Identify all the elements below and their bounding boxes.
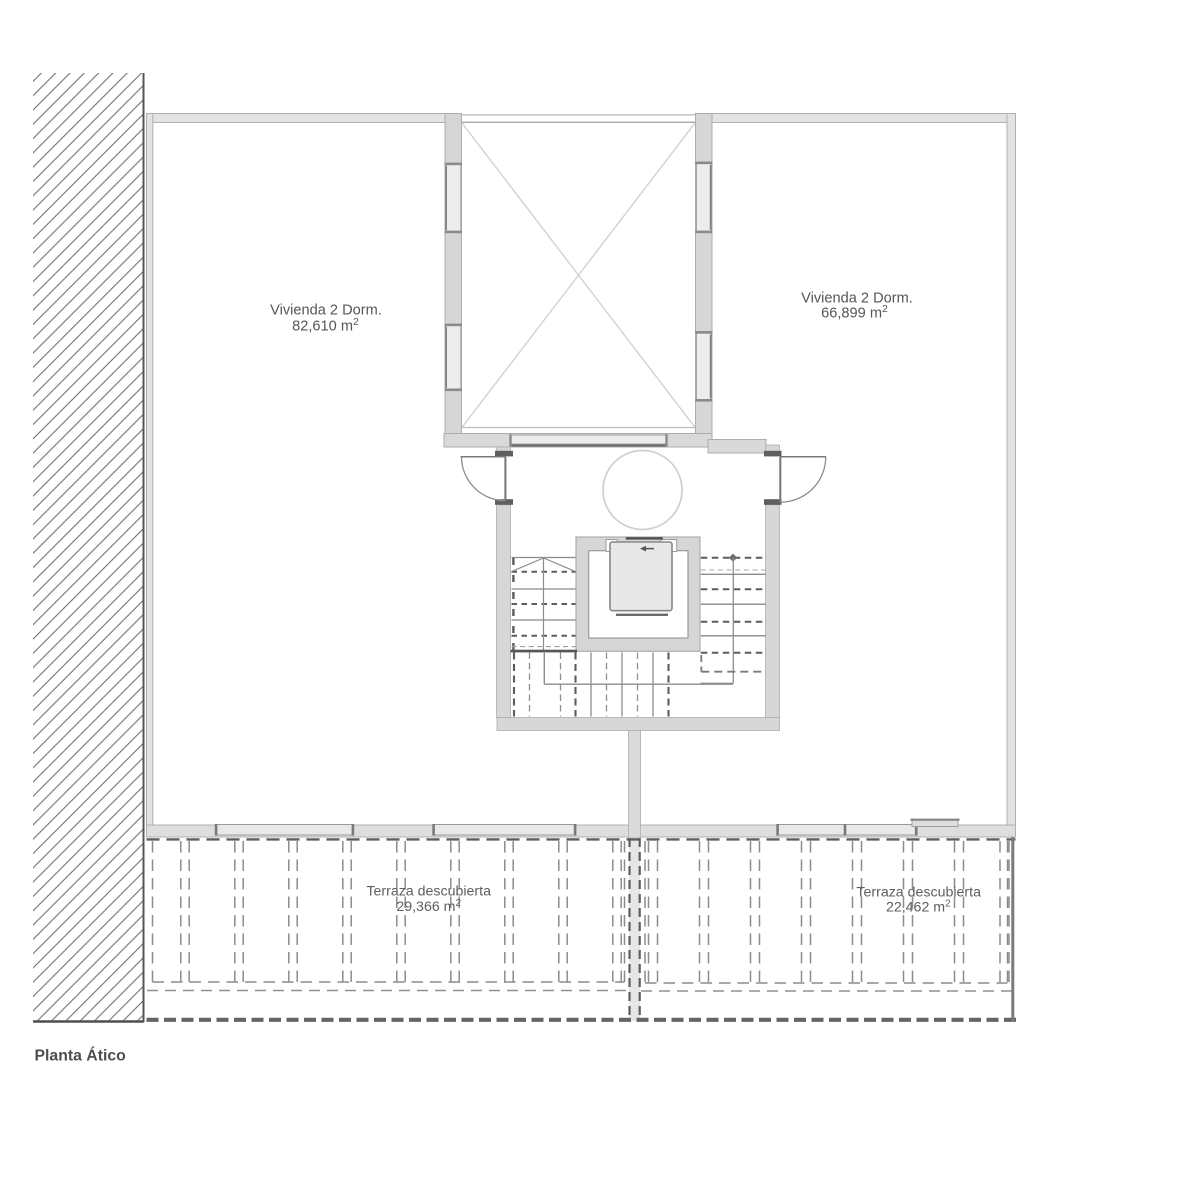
svg-text:66,899 m2: 66,899 m2	[821, 303, 888, 322]
svg-text:22,462 m2: 22,462 m2	[886, 899, 951, 916]
svg-text:29,366 m2: 29,366 m2	[396, 898, 461, 915]
svg-text:Terraza descubierta: Terraza descubierta	[366, 884, 491, 900]
svg-text:Planta Ático: Planta Ático	[35, 1046, 127, 1065]
svg-text:82,610 m2: 82,610 m2	[292, 316, 359, 335]
svg-text:Vivienda 2 Dorm.: Vivienda 2 Dorm.	[801, 291, 913, 307]
svg-text:Vivienda 2 Dorm.: Vivienda 2 Dorm.	[270, 303, 382, 319]
svg-text:Terraza descubierta: Terraza descubierta	[856, 885, 981, 901]
